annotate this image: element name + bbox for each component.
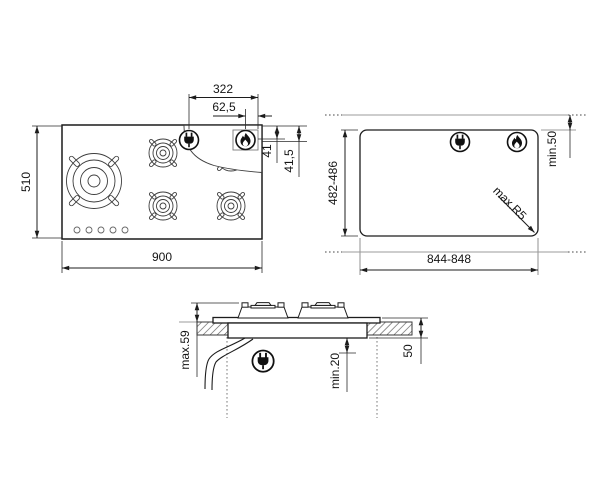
dim-label-50: 50 (401, 344, 415, 358)
dim-label-482-486: 482-486 (326, 161, 340, 205)
hob-profile-body (228, 323, 367, 338)
dim-label-41: 41 (260, 144, 274, 158)
dim-label-41-5: 41,5 (282, 149, 296, 173)
installation-diagram: 322 62,5 41 41,5 510 (0, 0, 600, 481)
gas-flame-icon (508, 133, 527, 152)
power-plug-icon (451, 133, 470, 152)
dim-label-min-50: min.50 (545, 131, 559, 167)
burner-profile-left (238, 303, 288, 318)
dim-cutout-depth: 482-486 (326, 130, 358, 236)
dim-label-510: 510 (19, 172, 33, 192)
dim-hob-width: 900 (62, 241, 262, 273)
worktop-hatch-left (197, 322, 228, 335)
dim-label-844-848: 844-848 (427, 252, 471, 266)
diagram-canvas: 322 62,5 41 41,5 510 (0, 0, 600, 481)
dim-max-height: max.59 (178, 303, 239, 377)
dim-label-max-59: max.59 (178, 330, 192, 370)
dim-label-322: 322 (213, 82, 233, 96)
side-section-view: max.59 min.20 50 (178, 303, 428, 418)
dim-hob-depth: 510 (19, 126, 62, 238)
power-cable (205, 338, 253, 390)
gas-flame-icon (236, 131, 255, 150)
power-plug-icon (180, 131, 199, 150)
dim-label-900: 900 (152, 250, 172, 264)
dim-rear-clearance: min.50 (541, 115, 576, 167)
burner-profile-right (298, 303, 348, 318)
dim-min-clearance: min.20 (328, 338, 356, 392)
worktop-cutout-view: 482-486 844-848 min.50 max.R5 (325, 115, 586, 275)
worktop-hatch-right (367, 322, 412, 335)
power-plug-icon (252, 350, 273, 371)
hob-top-view: 322 62,5 41 41,5 510 (19, 82, 307, 273)
dim-label-62-5: 62,5 (212, 100, 236, 114)
dim-cutout-width: 844-848 (360, 238, 538, 275)
dim-label-min-20: min.20 (328, 353, 342, 389)
